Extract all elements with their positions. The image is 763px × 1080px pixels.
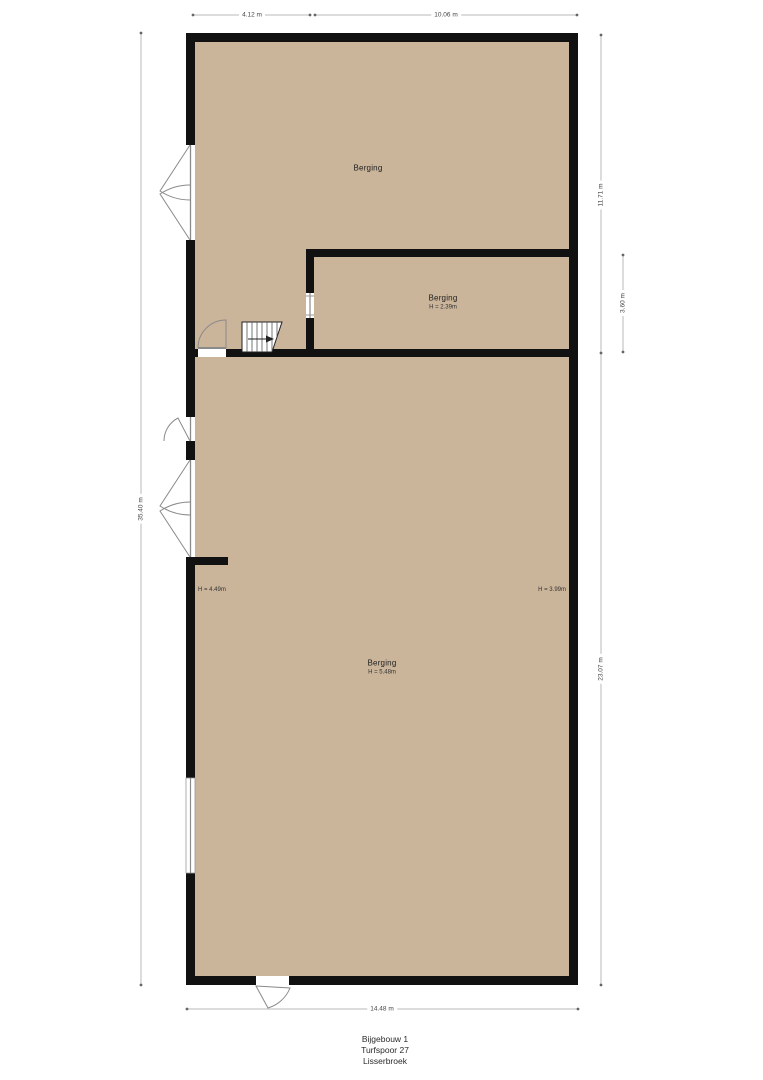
dimension-right-lower: 23.07 m [598, 654, 605, 684]
room-name: Berging [354, 164, 383, 173]
floorplan-page: Berging Berging H = 2.39m Berging H = 5.… [0, 0, 763, 1080]
dimension-top-left: 4.12 m [239, 12, 265, 19]
room-label-main-berging: Berging H = 5.48m [368, 659, 397, 676]
left-window [186, 778, 195, 873]
left-wall-height-note: H = 4.49m [198, 587, 226, 593]
dimension-top-right: 10.06 m [431, 12, 461, 19]
dimension-bottom: 14.48 m [367, 1006, 397, 1013]
exterior-walls [186, 33, 578, 985]
right-wall-height-note: H = 3.99m [520, 587, 566, 593]
title-street: Turfspoor 27 [361, 1045, 409, 1056]
title-city: Lisserbroek [361, 1056, 409, 1067]
left-double-door-bottom [160, 460, 195, 557]
left-double-door-top [160, 145, 195, 240]
title-block: Bijgebouw 1 Turfspoor 27 Lisserbroek [361, 1034, 409, 1067]
room-label-middle-berging: Berging H = 2.39m [429, 294, 458, 311]
dimension-right-upper: 11.71 m [598, 180, 605, 209]
room-label-top-berging: Berging [354, 164, 383, 173]
dimension-left: 35.40 m [138, 494, 145, 524]
floorplan-drawing [0, 0, 763, 1080]
bottom-door [256, 976, 290, 1008]
interior-door [306, 293, 314, 318]
room-name: Berging [368, 659, 397, 668]
dimension-right-middle: 3.60 m [620, 290, 627, 316]
room-height: H = 2.39m [429, 305, 458, 311]
room-height: H = 5.48m [368, 670, 397, 676]
title-building: Bijgebouw 1 [361, 1034, 409, 1045]
left-single-door [164, 417, 195, 441]
room-name: Berging [429, 294, 458, 303]
